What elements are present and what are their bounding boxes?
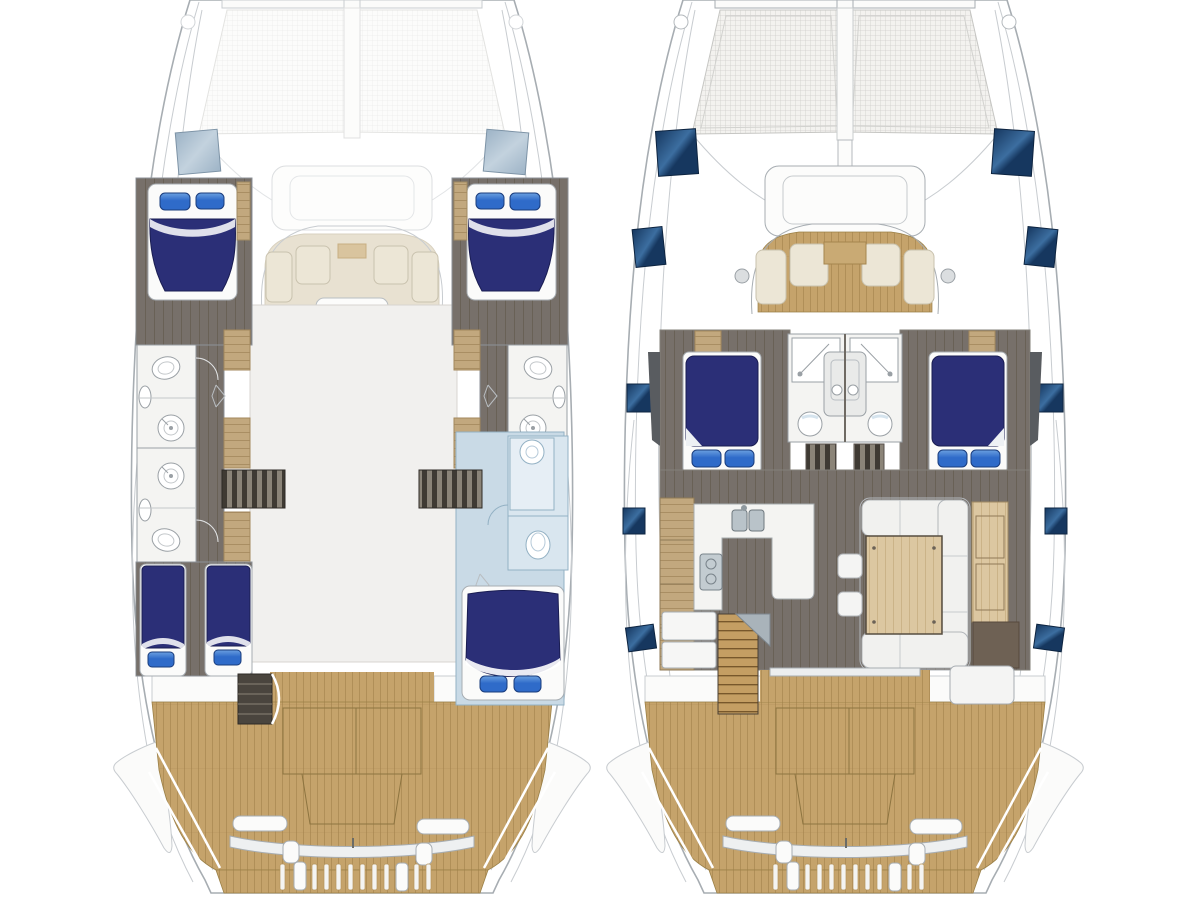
pillow <box>510 193 540 210</box>
deck-hatch <box>1033 624 1064 652</box>
cockpit-cushion-starboard-side <box>412 252 438 302</box>
pillow <box>514 676 541 692</box>
sliding-door <box>770 668 920 676</box>
deck-hatch <box>632 227 666 268</box>
sink <box>553 386 565 408</box>
deck-skylight-starboard <box>483 129 529 175</box>
bow-cleat-starboard <box>509 15 523 29</box>
fridge-box <box>662 612 716 640</box>
deck-light <box>941 269 955 283</box>
toilet <box>526 531 550 559</box>
port-hull-interior <box>136 178 252 676</box>
pillow <box>971 450 1000 467</box>
deck-hatch <box>623 508 645 534</box>
wardrobe <box>224 512 250 562</box>
pillow <box>196 193 224 209</box>
aft-cockpit-furniture <box>760 666 1014 704</box>
twin-bed-duvet <box>207 566 250 646</box>
sink <box>139 386 151 408</box>
bow-cleat-starboard <box>1002 15 1016 29</box>
twin-bed-duvet <box>142 566 184 648</box>
pillow <box>160 193 190 210</box>
cockpit-cushion-port-back <box>296 246 330 284</box>
companionway-stairs-port <box>222 470 285 508</box>
deck-hatch <box>1024 227 1058 268</box>
cabin-step <box>237 182 250 240</box>
bow-cleat-port <box>674 15 688 29</box>
hull-stair-port <box>806 444 836 470</box>
trampoline-center-beam <box>837 8 853 140</box>
floorplan-svg <box>0 0 1200 900</box>
deck-hatch <box>991 129 1034 177</box>
sink <box>749 510 764 531</box>
deck-hatch <box>1039 384 1063 412</box>
port-corridor <box>196 345 224 562</box>
faucet <box>741 505 747 511</box>
port-duvet <box>686 356 758 446</box>
wardrobe <box>224 418 250 468</box>
shower <box>520 440 544 464</box>
starboard-hull-interior <box>452 178 568 705</box>
ottoman <box>838 592 862 616</box>
nav-cabinet <box>973 622 1019 668</box>
pillow <box>476 193 504 209</box>
pillow <box>148 652 174 667</box>
main-deck-plan <box>607 0 1084 893</box>
deck-hatch <box>1045 508 1067 534</box>
fridge-box <box>662 642 716 668</box>
trampoline-center-beam <box>344 8 360 138</box>
cockpit-cushion-port-side <box>756 250 786 304</box>
sofa-front <box>862 632 968 668</box>
sink <box>139 499 151 521</box>
pillow <box>214 650 241 665</box>
cockpit-cushion-port-side <box>266 252 292 302</box>
sink <box>732 510 747 531</box>
hull-stair-starboard <box>854 444 884 470</box>
shower <box>158 415 184 441</box>
cabin-step <box>454 182 467 240</box>
cockpit-cushion-starboard-side <box>904 250 934 304</box>
pillow <box>938 450 967 467</box>
cockpit-cushion-starboard-back <box>374 246 408 284</box>
cockpit-cushion-starboard-back <box>862 244 900 286</box>
cockpit-shelf <box>338 244 366 258</box>
lower-deck-plan <box>114 0 591 893</box>
pillow <box>692 450 721 467</box>
companionway-stairs-starboard <box>419 470 482 508</box>
ottoman <box>838 554 862 578</box>
wardrobe <box>454 330 480 370</box>
wardrobe <box>224 330 250 370</box>
bow-cleat-port <box>181 15 195 29</box>
deck-hatch <box>625 624 656 652</box>
cockpit-seat <box>950 666 1014 704</box>
basin <box>848 385 858 395</box>
cockpit-cushion-port-back <box>790 244 828 286</box>
deck-hatch <box>656 129 699 177</box>
basin <box>832 385 842 395</box>
deck-hatch <box>627 384 651 412</box>
shower <box>158 463 184 489</box>
pillow <box>480 676 507 692</box>
deck-light <box>735 269 749 283</box>
cockpit-table <box>824 242 866 264</box>
pillow <box>725 450 754 467</box>
starboard-corridor <box>480 345 508 432</box>
deck-skylight-port <box>175 129 221 175</box>
catamaran-floorplan-image <box>0 0 1200 900</box>
suite-duvet <box>466 590 560 676</box>
sideboard <box>972 502 1008 622</box>
salon-table <box>866 536 942 634</box>
starboard-duvet <box>932 356 1004 446</box>
